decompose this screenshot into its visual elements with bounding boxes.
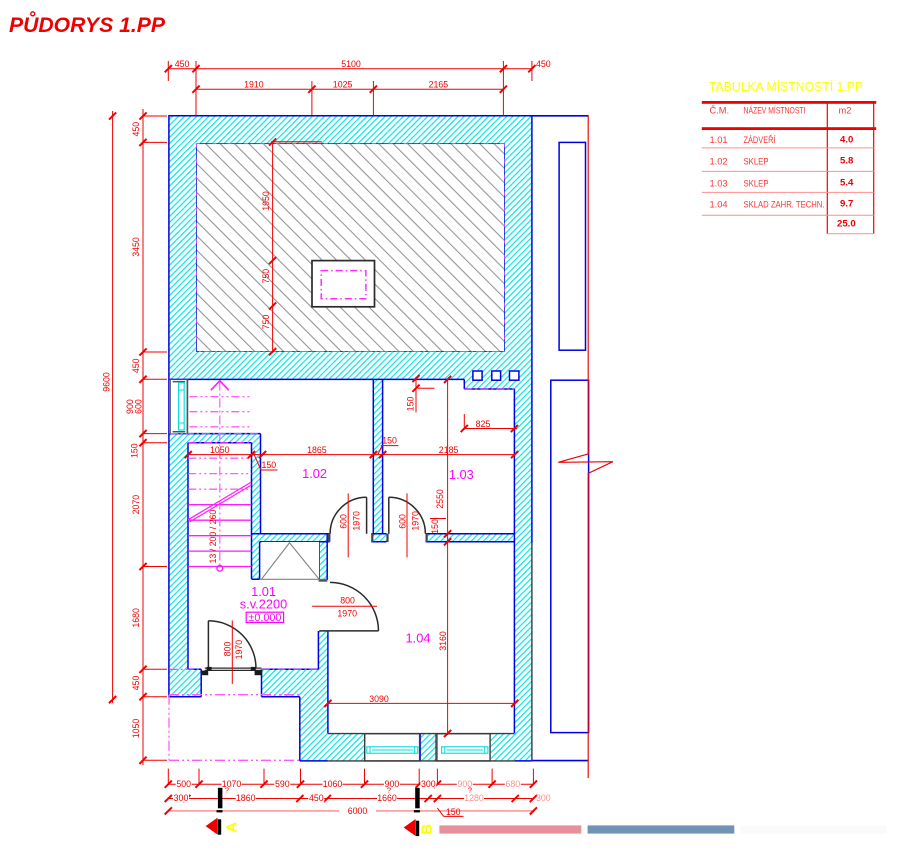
svg-text:?: ? xyxy=(468,786,472,795)
svg-text:1660: 1660 xyxy=(377,793,397,803)
svg-text:450: 450 xyxy=(536,59,551,69)
svg-text:1060: 1060 xyxy=(323,779,343,789)
svg-text:825: 825 xyxy=(476,419,491,429)
svg-text:A: A xyxy=(224,822,241,833)
svg-text:150: 150 xyxy=(406,397,416,412)
svg-text:300: 300 xyxy=(536,793,551,803)
svg-text:600: 600 xyxy=(397,514,407,529)
svg-text:750: 750 xyxy=(261,315,271,330)
svg-text:1680: 1680 xyxy=(131,608,141,628)
svg-text:3450: 3450 xyxy=(131,237,141,257)
svg-text:SKLEP: SKLEP xyxy=(744,178,769,188)
svg-text:750: 750 xyxy=(261,269,271,284)
svg-text:450: 450 xyxy=(131,358,141,373)
svg-text:5100: 5100 xyxy=(341,59,361,69)
svg-text:3090: 3090 xyxy=(369,694,389,704)
svg-text:1910: 1910 xyxy=(244,79,264,89)
svg-text:PŮDORYS 1.PP: PŮDORYS 1.PP xyxy=(9,9,166,37)
svg-text:300: 300 xyxy=(421,779,436,789)
svg-text:SKLEP: SKLEP xyxy=(744,156,769,166)
svg-text:300: 300 xyxy=(174,793,189,803)
svg-text:1050: 1050 xyxy=(131,719,141,739)
svg-text:2165: 2165 xyxy=(429,79,449,89)
svg-text:800: 800 xyxy=(223,642,233,657)
svg-text:600: 600 xyxy=(133,399,143,414)
svg-text:680: 680 xyxy=(505,779,520,789)
svg-text:500: 500 xyxy=(176,779,191,789)
svg-text:800: 800 xyxy=(340,595,355,605)
svg-text:590: 590 xyxy=(275,779,290,789)
svg-text:6000: 6000 xyxy=(348,806,368,816)
svg-text:TABULKA MÍSTNOSTÍ 1.PP: TABULKA MÍSTNOSTÍ 1.PP xyxy=(709,79,863,94)
svg-text:ZÁDVEŘÍ: ZÁDVEŘÍ xyxy=(744,135,776,145)
svg-text:1970: 1970 xyxy=(234,640,244,660)
svg-text:150: 150 xyxy=(130,443,140,458)
svg-text:1025: 1025 xyxy=(333,79,353,89)
svg-text:Č.M.: Č.M. xyxy=(710,106,730,116)
svg-text:1.03: 1.03 xyxy=(710,178,728,188)
svg-text:1970: 1970 xyxy=(411,511,421,531)
svg-text:2185: 2185 xyxy=(439,445,459,455)
svg-text:4.0: 4.0 xyxy=(840,135,853,146)
svg-text:±0,000: ±0,000 xyxy=(248,612,281,624)
svg-text:150: 150 xyxy=(446,807,461,817)
svg-text:2550: 2550 xyxy=(435,489,445,509)
svg-text:25.0: 25.0 xyxy=(837,219,856,230)
svg-text:1.03: 1.03 xyxy=(449,467,474,482)
svg-text:?: ? xyxy=(387,786,391,795)
svg-text:150: 150 xyxy=(261,460,276,470)
svg-text:1.02: 1.02 xyxy=(710,156,728,166)
svg-text:5.4: 5.4 xyxy=(840,178,854,189)
svg-text:150: 150 xyxy=(430,519,440,534)
svg-text:600: 600 xyxy=(338,514,348,529)
svg-text:3160: 3160 xyxy=(438,631,448,651)
svg-text:NÁZEV MÍSTNOSTI: NÁZEV MÍSTNOSTI xyxy=(744,106,806,116)
svg-text:m2: m2 xyxy=(839,106,852,116)
svg-text:450: 450 xyxy=(309,793,324,803)
svg-text:1950: 1950 xyxy=(261,191,271,211)
svg-text:1970: 1970 xyxy=(337,609,357,619)
svg-text:1860: 1860 xyxy=(236,793,256,803)
svg-text:450: 450 xyxy=(131,122,141,137)
svg-text:450: 450 xyxy=(131,676,141,691)
svg-text:1865: 1865 xyxy=(307,445,327,455)
svg-text:1050: 1050 xyxy=(210,445,230,455)
svg-text:?: ? xyxy=(225,786,229,795)
svg-text:1.04: 1.04 xyxy=(406,631,431,646)
svg-text:B: B xyxy=(419,824,436,835)
svg-text:9600: 9600 xyxy=(102,372,112,392)
svg-text:1.01: 1.01 xyxy=(710,135,728,145)
svg-text:1.02: 1.02 xyxy=(302,466,327,481)
svg-text:150: 150 xyxy=(382,436,397,446)
svg-text:1970: 1970 xyxy=(352,511,362,531)
svg-text:2070: 2070 xyxy=(131,495,141,515)
svg-text:13 / 200 / 260: 13 / 200 / 260 xyxy=(208,510,218,564)
svg-text:1280: 1280 xyxy=(464,793,484,803)
svg-text:1.04: 1.04 xyxy=(710,199,728,209)
svg-text:5.8: 5.8 xyxy=(840,156,854,167)
svg-text:s.v.2200: s.v.2200 xyxy=(240,597,287,612)
svg-text:450: 450 xyxy=(175,59,190,69)
svg-text:SKLAD ZAHR. TECHN.: SKLAD ZAHR. TECHN. xyxy=(744,199,825,209)
svg-text:9.7: 9.7 xyxy=(840,199,853,210)
